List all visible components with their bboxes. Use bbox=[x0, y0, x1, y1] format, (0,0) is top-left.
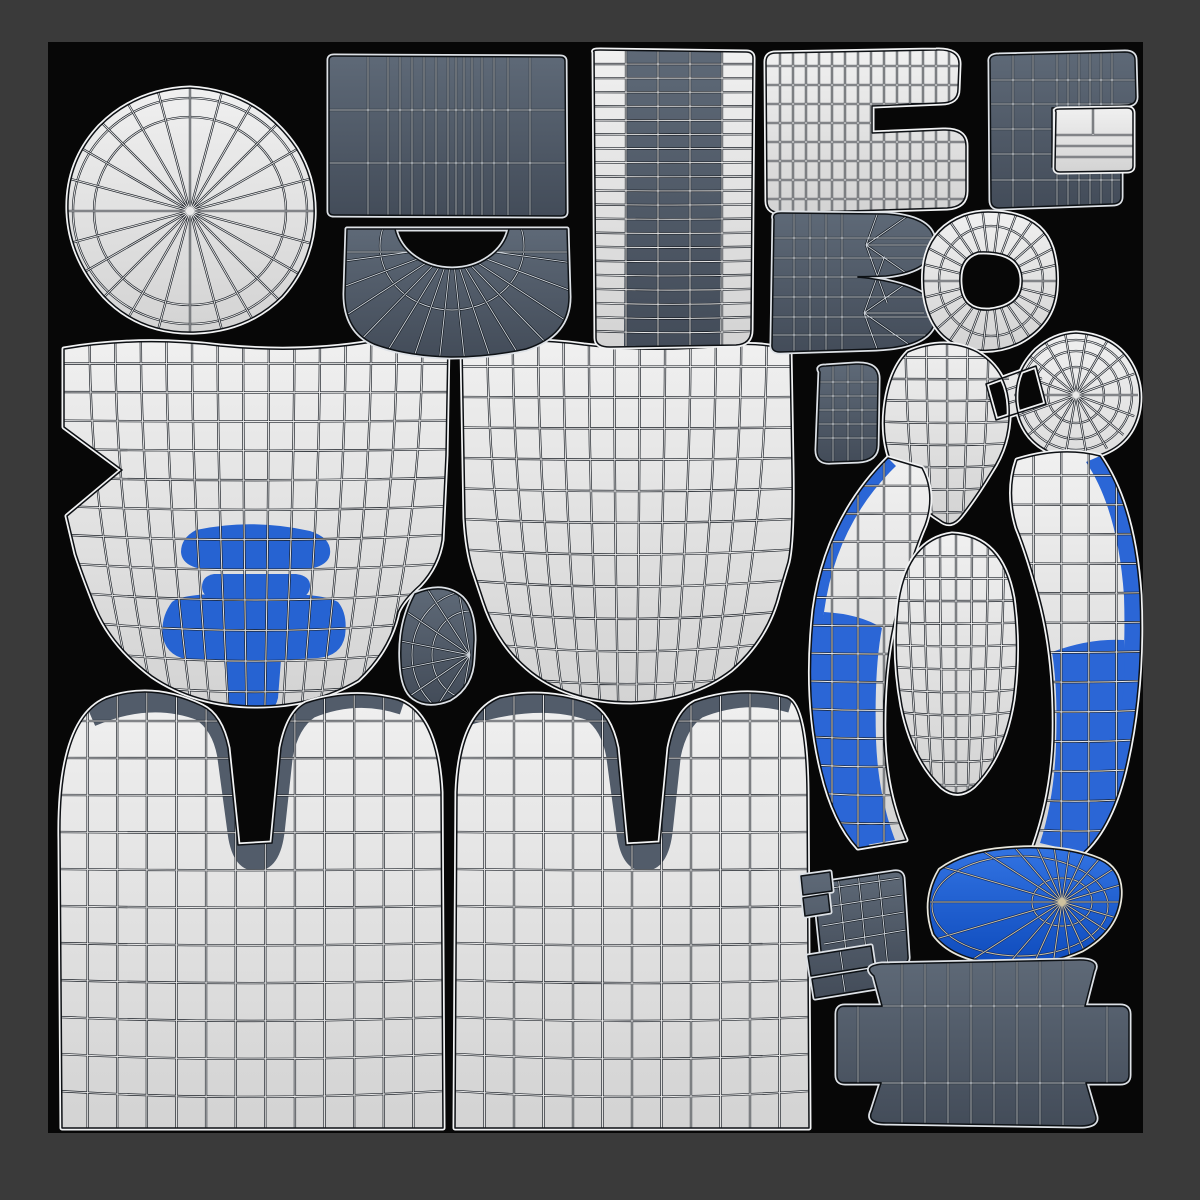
uv-canvas[interactable] bbox=[0, 0, 1200, 1200]
tread-strip-slate-band bbox=[624, 50, 722, 346]
uv-island-panel-grid[interactable] bbox=[329, 56, 566, 216]
uv-island-bowtie-slate[interactable] bbox=[837, 959, 1129, 1126]
uv-island-shirt-right[interactable] bbox=[462, 336, 792, 702]
chest-logo-decal-top bbox=[181, 524, 330, 570]
uv-island-tread-strip[interactable] bbox=[592, 50, 753, 347]
uv-island-bracket-white[interactable] bbox=[766, 49, 966, 213]
uv-island-inset-plate[interactable] bbox=[1055, 108, 1133, 172]
editor-background bbox=[0, 0, 1200, 1200]
uv-island-pill-slate[interactable] bbox=[816, 363, 879, 463]
